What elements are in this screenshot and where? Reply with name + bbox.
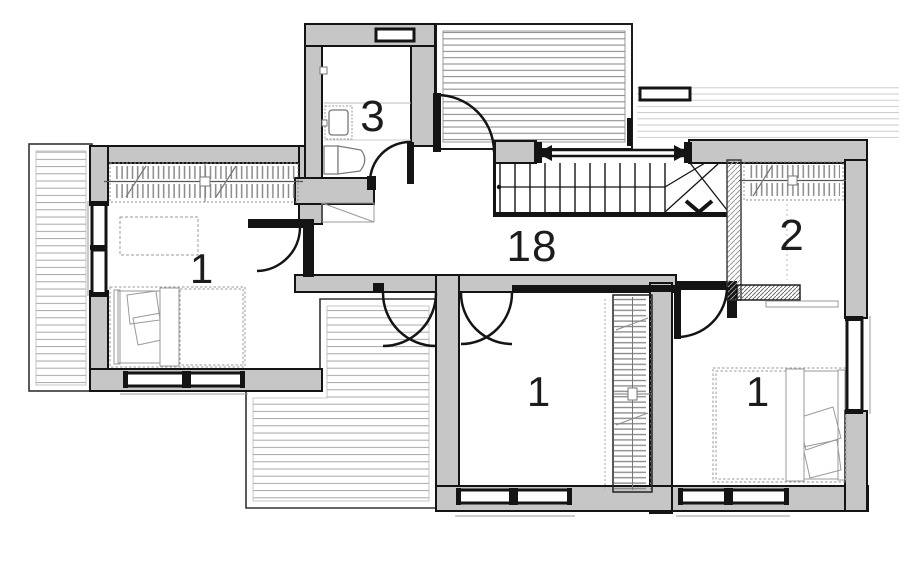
window (376, 29, 414, 41)
window (458, 490, 512, 503)
room-label-hallway: 18 (507, 222, 558, 271)
knee-wall-hatched (737, 285, 800, 300)
door-leaf-bedroom-right (674, 287, 681, 339)
wall-fixture (320, 67, 327, 74)
sink (322, 106, 352, 139)
window (730, 490, 787, 503)
floor-plan-drawing: 1 3 18 2 1 1 (0, 0, 911, 567)
door-leaf-bathroom (407, 142, 414, 184)
room-label-bathroom: 3 (360, 92, 385, 141)
floor-plan: 1 3 18 2 1 1 (0, 0, 911, 567)
door-leaf-terrace (433, 93, 441, 152)
desk (766, 301, 838, 307)
window (188, 373, 243, 386)
window (92, 250, 106, 294)
room-label-bedroom-left: 1 (190, 245, 214, 292)
window (515, 490, 570, 503)
partition-hatched (727, 160, 741, 300)
terrace-region-top (436, 24, 632, 149)
window (125, 373, 185, 386)
window (640, 88, 690, 100)
window (680, 490, 727, 503)
window (92, 203, 106, 248)
roof-region-left (29, 144, 92, 391)
room-label-bedroom-right: 1 (746, 368, 770, 415)
room-label-closet-room: 2 (779, 211, 804, 260)
window (847, 318, 862, 411)
room-label-bedroom-middle: 1 (527, 368, 551, 415)
toilet (324, 146, 365, 174)
wardrobe-closet-room (739, 162, 846, 200)
